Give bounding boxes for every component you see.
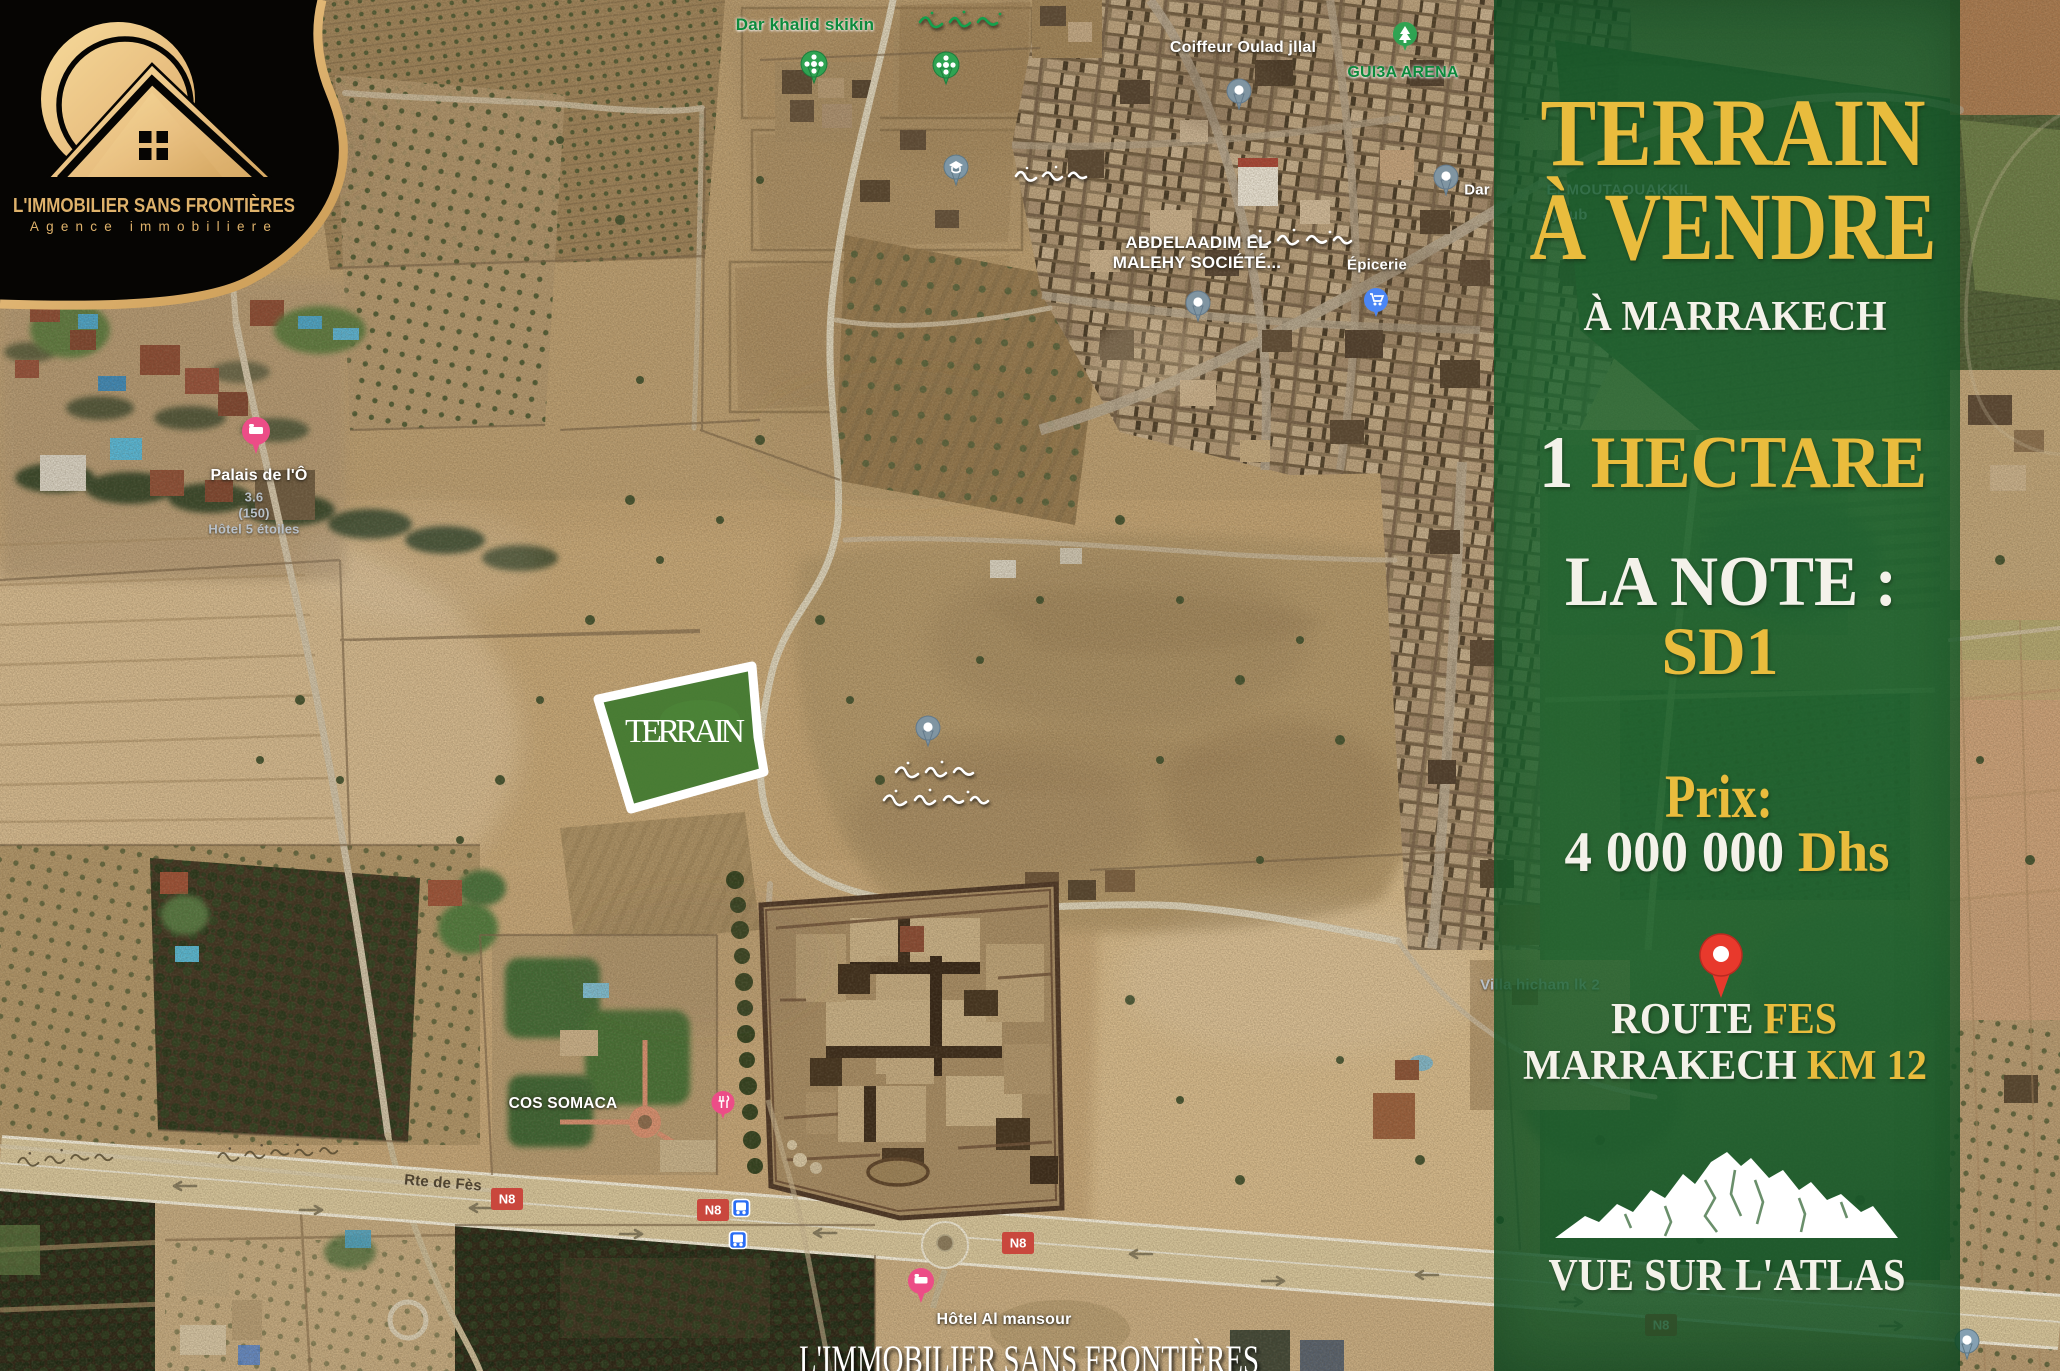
svg-text:À VENDRE: À VENDRE (1530, 173, 1937, 280)
svg-text:1 HECTARE: 1 HECTARE (1539, 422, 1927, 504)
svg-text:N8: N8 (1010, 1236, 1027, 1251)
svg-text:VUE SUR L'ATLAS: VUE SUR L'ATLAS (1549, 1249, 1906, 1300)
svg-text:Agence immobiliere: Agence immobiliere (30, 219, 278, 234)
svg-text:N8: N8 (705, 1203, 722, 1218)
svg-text:L'IMMOBILIER SANS FRONTIÈRES: L'IMMOBILIER SANS FRONTIÈRES (13, 194, 295, 217)
svg-text:TERRAIN: TERRAIN (1541, 79, 1926, 186)
svg-text:4 000 000 Dhs: 4 000 000 Dhs (1565, 821, 1890, 884)
svg-text:ROUTE FES: ROUTE FES (1611, 994, 1837, 1043)
svg-text:SD1: SD1 (1662, 613, 1779, 689)
svg-text:MARRAKECH KM 12: MARRAKECH KM 12 (1523, 1043, 1927, 1089)
svg-text:TERRAIN: TERRAIN (625, 713, 747, 750)
svg-text:LA NOTE :: LA NOTE : (1565, 543, 1897, 621)
svg-text:N8: N8 (499, 1192, 516, 1207)
svg-text:L'IMMOBILIER SANS FRONTIÈRES: L'IMMOBILIER SANS FRONTIÈRES (799, 1337, 1259, 1371)
svg-text:À MARRAKECH: À MARRAKECH (1584, 293, 1887, 340)
